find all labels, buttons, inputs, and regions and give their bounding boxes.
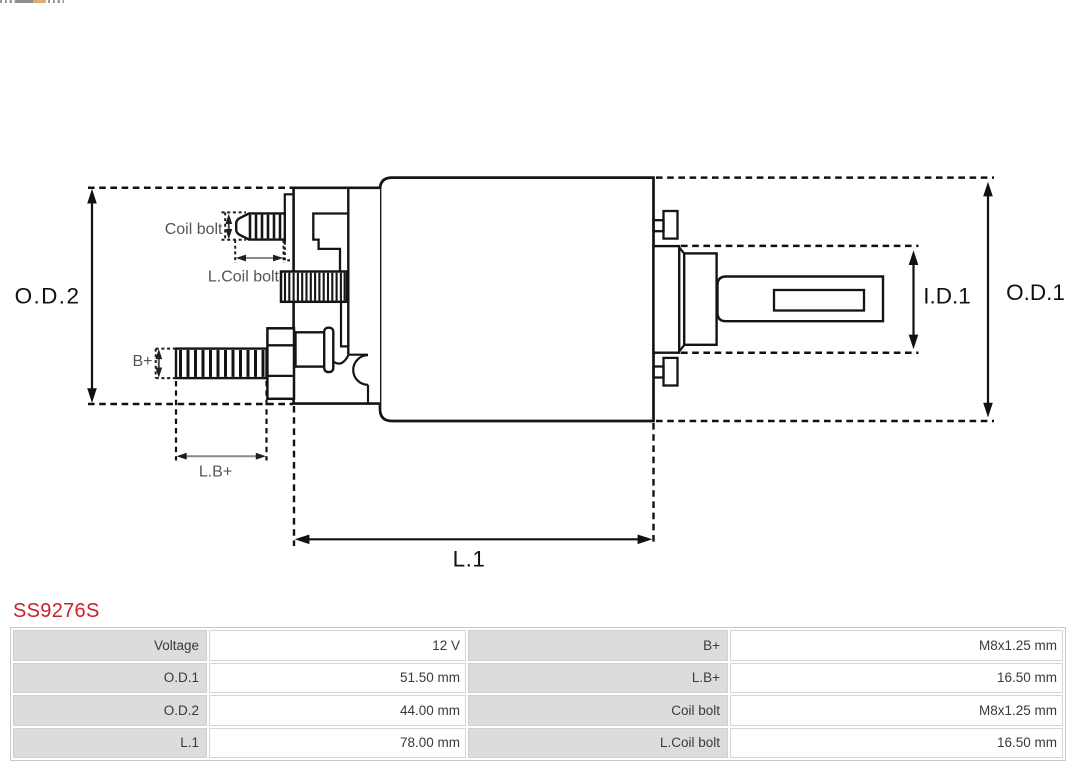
- svg-text:I.D.1: I.D.1: [923, 284, 971, 309]
- svg-text:L.B+: L.B+: [199, 464, 232, 481]
- svg-text:L.Coil bolt: L.Coil bolt: [208, 269, 280, 286]
- svg-text:Coil bolt: Coil bolt: [165, 221, 223, 238]
- svg-text:O.D.1: O.D.1: [1006, 280, 1065, 305]
- svg-text:B+: B+: [132, 353, 152, 370]
- svg-text:O.D.2: O.D.2: [15, 284, 81, 309]
- svg-text:L.1: L.1: [453, 547, 486, 572]
